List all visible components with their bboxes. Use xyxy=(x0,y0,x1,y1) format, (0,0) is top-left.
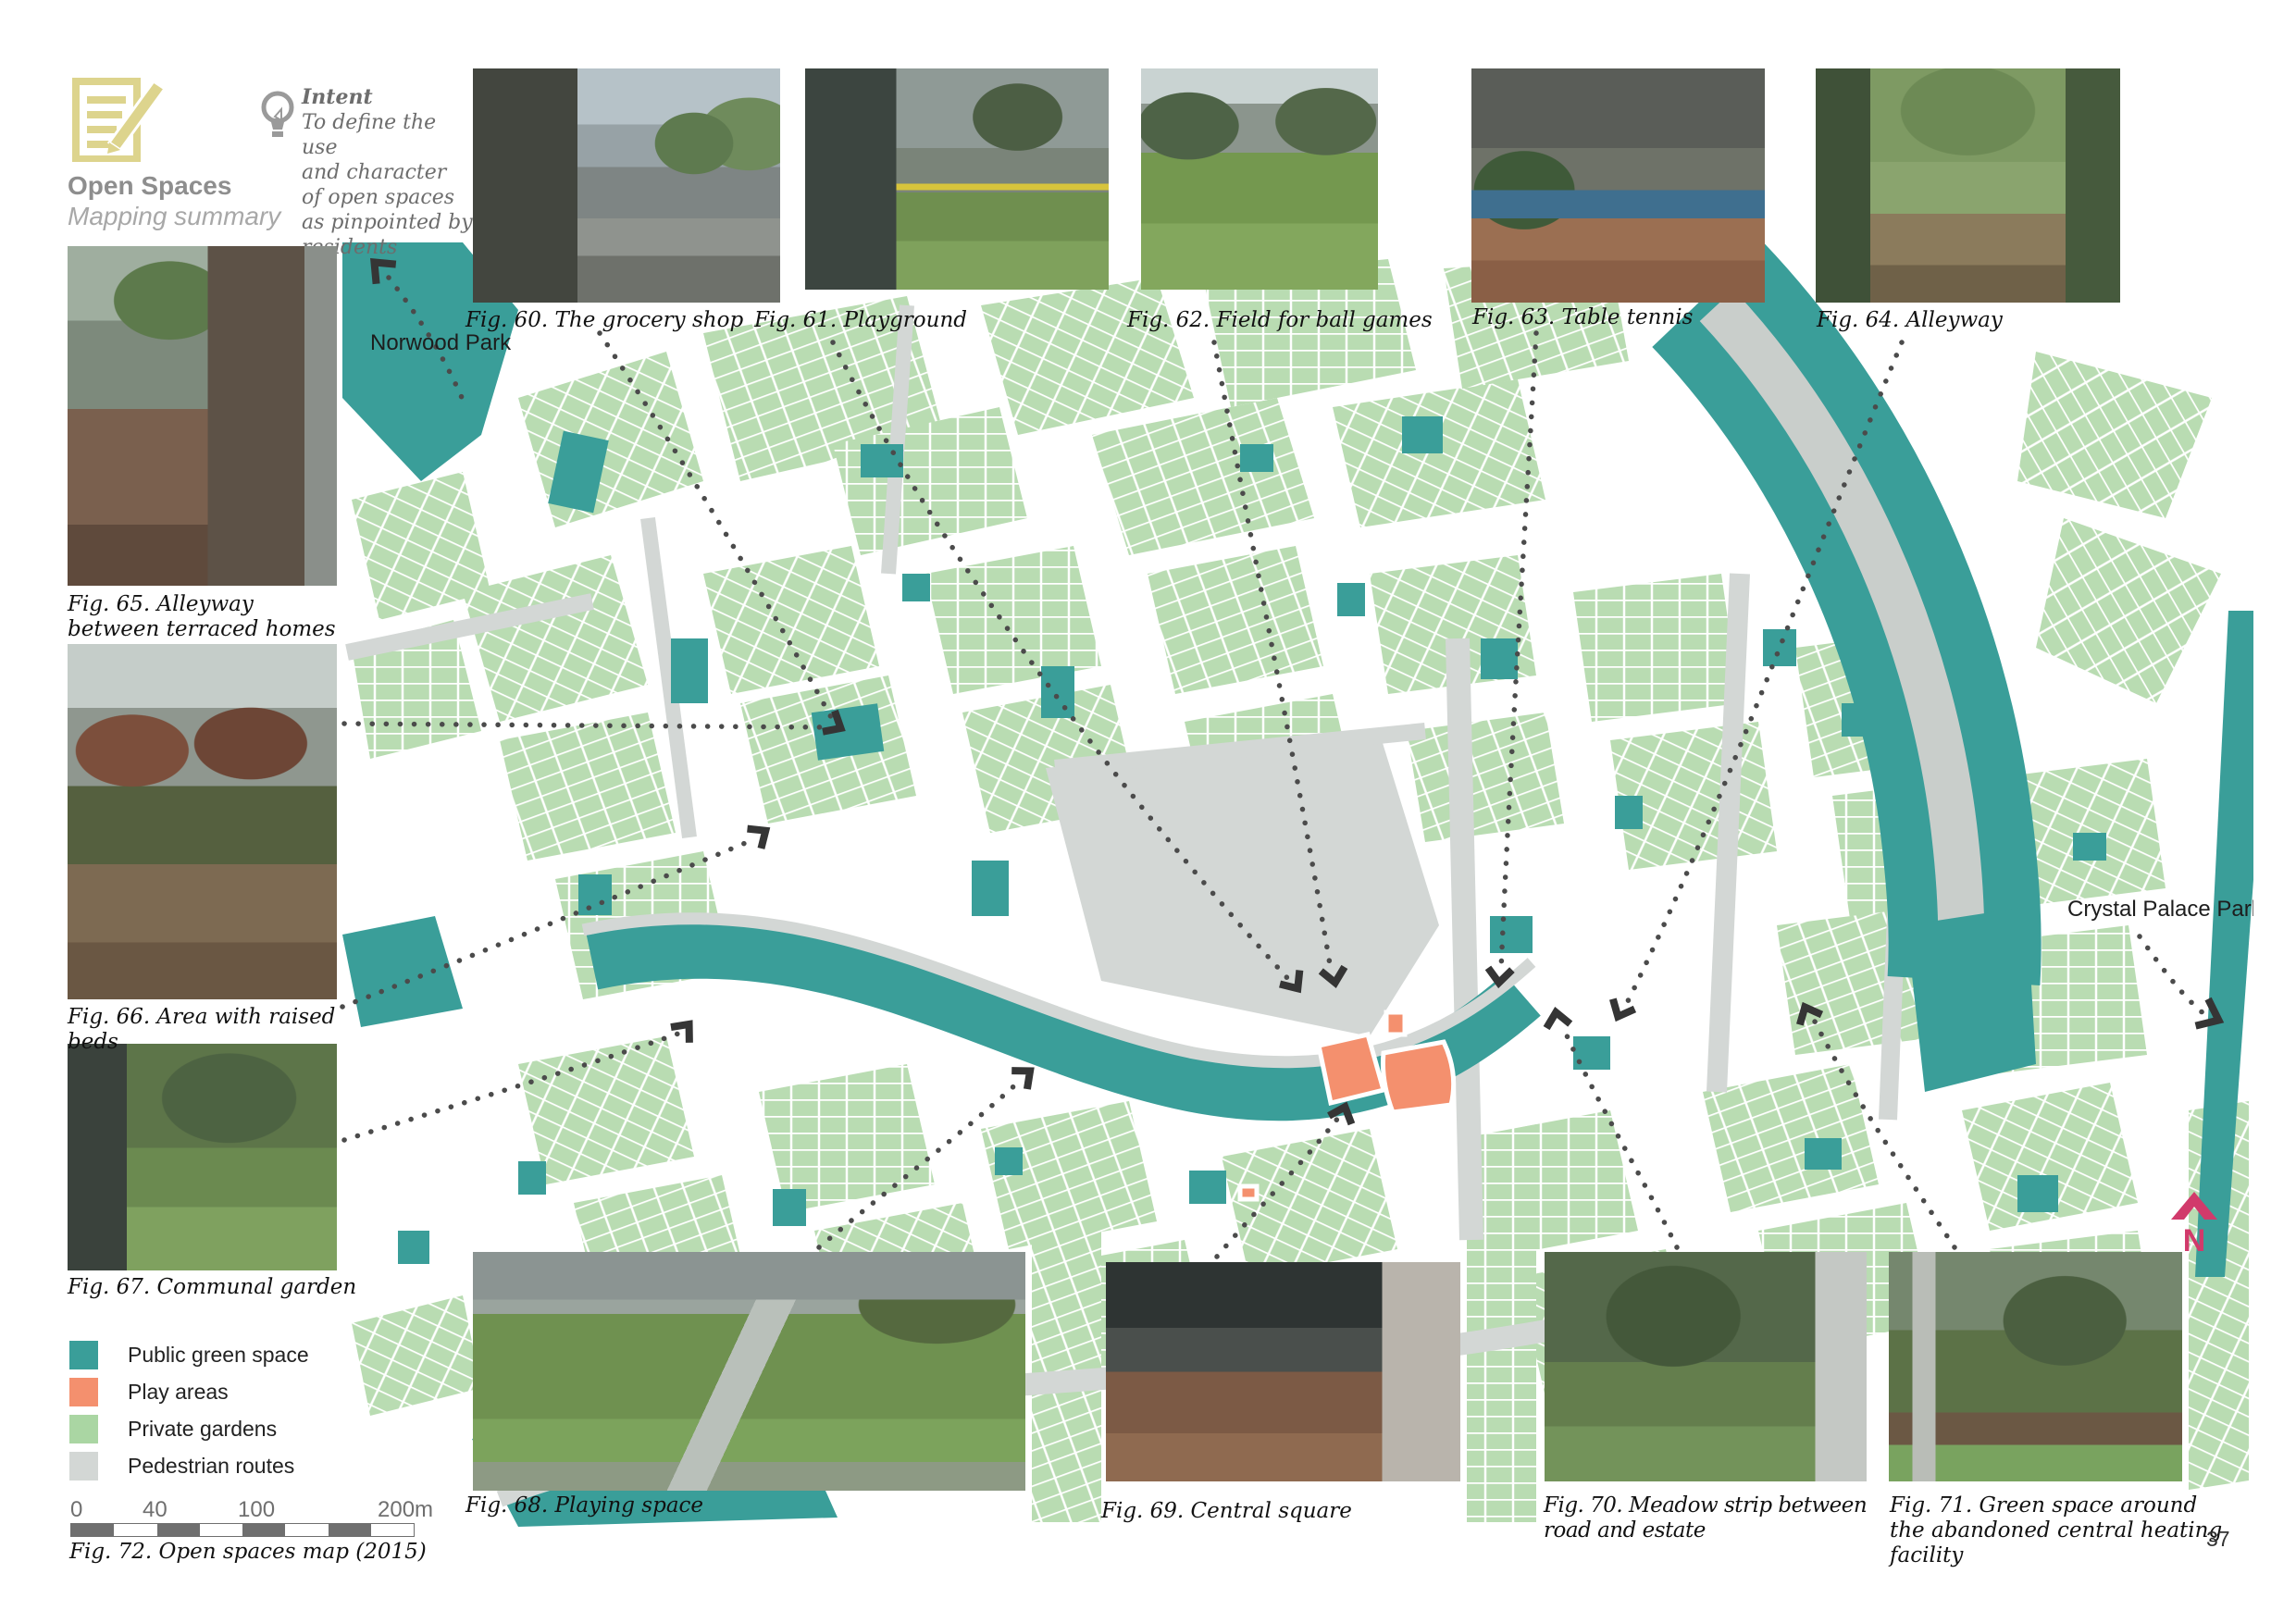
caption-fig-65: Fig. 65. Alleyway between terraced homes xyxy=(68,592,350,642)
photo-table-tennis xyxy=(1471,68,1765,303)
legend-item-public-green: Public green space xyxy=(69,1336,309,1373)
caption-fig-71: Fig. 71. Green space around the abandone… xyxy=(1890,1493,2234,1568)
photo-raised-beds xyxy=(68,644,337,999)
caption-fig-62: Fig. 62. Field for ball games xyxy=(1127,308,1433,333)
legend-swatch-play-areas xyxy=(69,1378,98,1406)
norwood-park-label: Norwood Park xyxy=(370,330,512,355)
caption-fig-70: Fig. 70. Meadow strip between road and e… xyxy=(1544,1493,1875,1543)
crystal-palace-park-label: Crystal Palace Park xyxy=(2067,897,2253,922)
caption-fig-66: Fig. 66. Area with raised beds xyxy=(68,1005,364,1055)
caption-fig-67: Fig. 67. Communal garden xyxy=(68,1275,364,1300)
legend-item-pedestrian-routes: Pedestrian routes xyxy=(69,1447,309,1484)
lightbulb-icon xyxy=(259,89,296,146)
caption-fig-63: Fig. 63. Table tennis xyxy=(1472,305,1693,330)
photo-alleyway xyxy=(1816,68,2120,303)
caption-fig-68: Fig. 68. Playing space xyxy=(465,1493,703,1518)
legend-item-private-gardens: Private gardens xyxy=(69,1410,309,1447)
caption-fig-64: Fig. 64. Alleyway xyxy=(1817,308,2003,333)
page-number: 37 xyxy=(2206,1527,2230,1552)
report-page: Norwood Park Crystal Palace Park N Open … xyxy=(0,0,2296,1623)
legend-swatch-public-green xyxy=(69,1341,98,1369)
caption-fig-60: Fig. 60. The grocery shop xyxy=(465,308,743,333)
intent-note: Intent To define the use and character o… xyxy=(302,85,478,260)
map-legend: Public green space Play areas Private ga… xyxy=(69,1336,309,1484)
photo-grocery-shop xyxy=(473,68,780,303)
intent-heading: Intent xyxy=(302,85,478,110)
photo-playing-space xyxy=(473,1252,1025,1491)
legend-swatch-pedestrian-routes xyxy=(69,1452,98,1481)
photo-meadow-strip xyxy=(1545,1252,1867,1481)
caption-fig-72: Fig. 72. Open spaces map (2015) xyxy=(69,1540,427,1565)
photo-alleyway-terraced xyxy=(68,246,337,586)
svg-text:N: N xyxy=(2183,1223,2206,1258)
legend-item-play-areas: Play areas xyxy=(69,1373,309,1410)
photo-ball-games-field xyxy=(1141,68,1378,290)
map-scale-bar: 0 40 100 200m xyxy=(70,1497,415,1536)
photo-playground xyxy=(805,68,1109,290)
caption-fig-61: Fig. 61. Playground xyxy=(754,308,967,333)
photo-communal-garden xyxy=(68,1044,337,1270)
photo-heating-facility-green xyxy=(1889,1252,2182,1481)
page-subtitle: Mapping summary xyxy=(68,202,280,231)
page-title: Open Spaces xyxy=(68,171,231,201)
photo-central-square xyxy=(1106,1262,1460,1481)
notepad-pencil-icon xyxy=(68,65,180,162)
caption-fig-69: Fig. 69. Central square xyxy=(1101,1499,1352,1524)
legend-swatch-private-gardens xyxy=(69,1415,98,1443)
